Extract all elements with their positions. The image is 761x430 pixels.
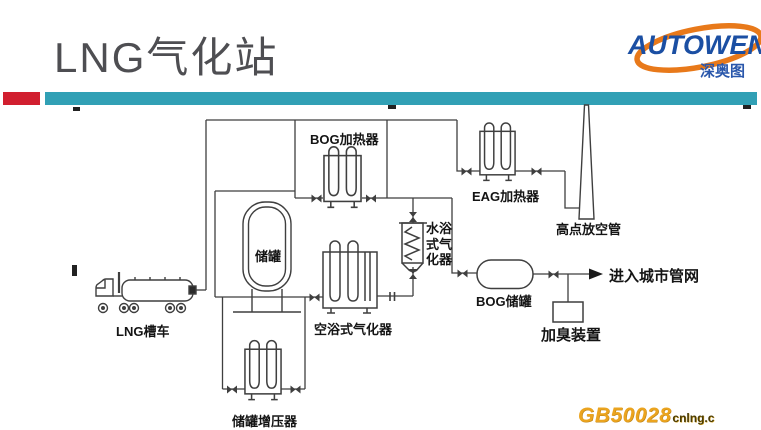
bog-heater-label: BOG加热器 [310, 129, 379, 148]
odorizer-drawing [553, 302, 583, 322]
watermark: GB50028cnlng.c [578, 404, 714, 428]
process-flow-diagram [0, 0, 761, 429]
city-network-label: 进入城市管网 [609, 265, 699, 286]
vent-stack-label: 高点放空管 [556, 219, 621, 238]
lng-truck-drawing [96, 272, 196, 313]
air-vaporizer-label: 空浴式气化器 [314, 319, 392, 338]
flow-arrow [589, 269, 603, 280]
vent-stack-drawing [579, 105, 594, 219]
bog-tank-label: BOG储罐 [476, 291, 532, 310]
watermark-code: GB50028 [578, 404, 671, 427]
bog-heater-drawing [324, 147, 361, 207]
bog-tank-drawing [477, 260, 533, 289]
watermark-suffix: cnlng.c [672, 411, 714, 425]
storage-tank-label: 储罐 [255, 246, 281, 265]
eag-heater-label: EAG加热器 [472, 186, 539, 205]
lng-truck-label: LNG槽车 [116, 321, 169, 340]
air-vaporizer-drawing [323, 241, 377, 313]
water-bath-vaporizer-label: 水浴式气化器 [426, 221, 454, 268]
odorizer-label: 加臭装置 [541, 324, 601, 345]
tank-pressurizer-label: 储罐增压器 [232, 411, 297, 430]
eag-heater-drawing [480, 123, 515, 180]
water-bath-vaporizer-drawing [399, 223, 427, 271]
stray-marks [72, 105, 751, 276]
tank-pressurizer-drawing [245, 341, 281, 400]
